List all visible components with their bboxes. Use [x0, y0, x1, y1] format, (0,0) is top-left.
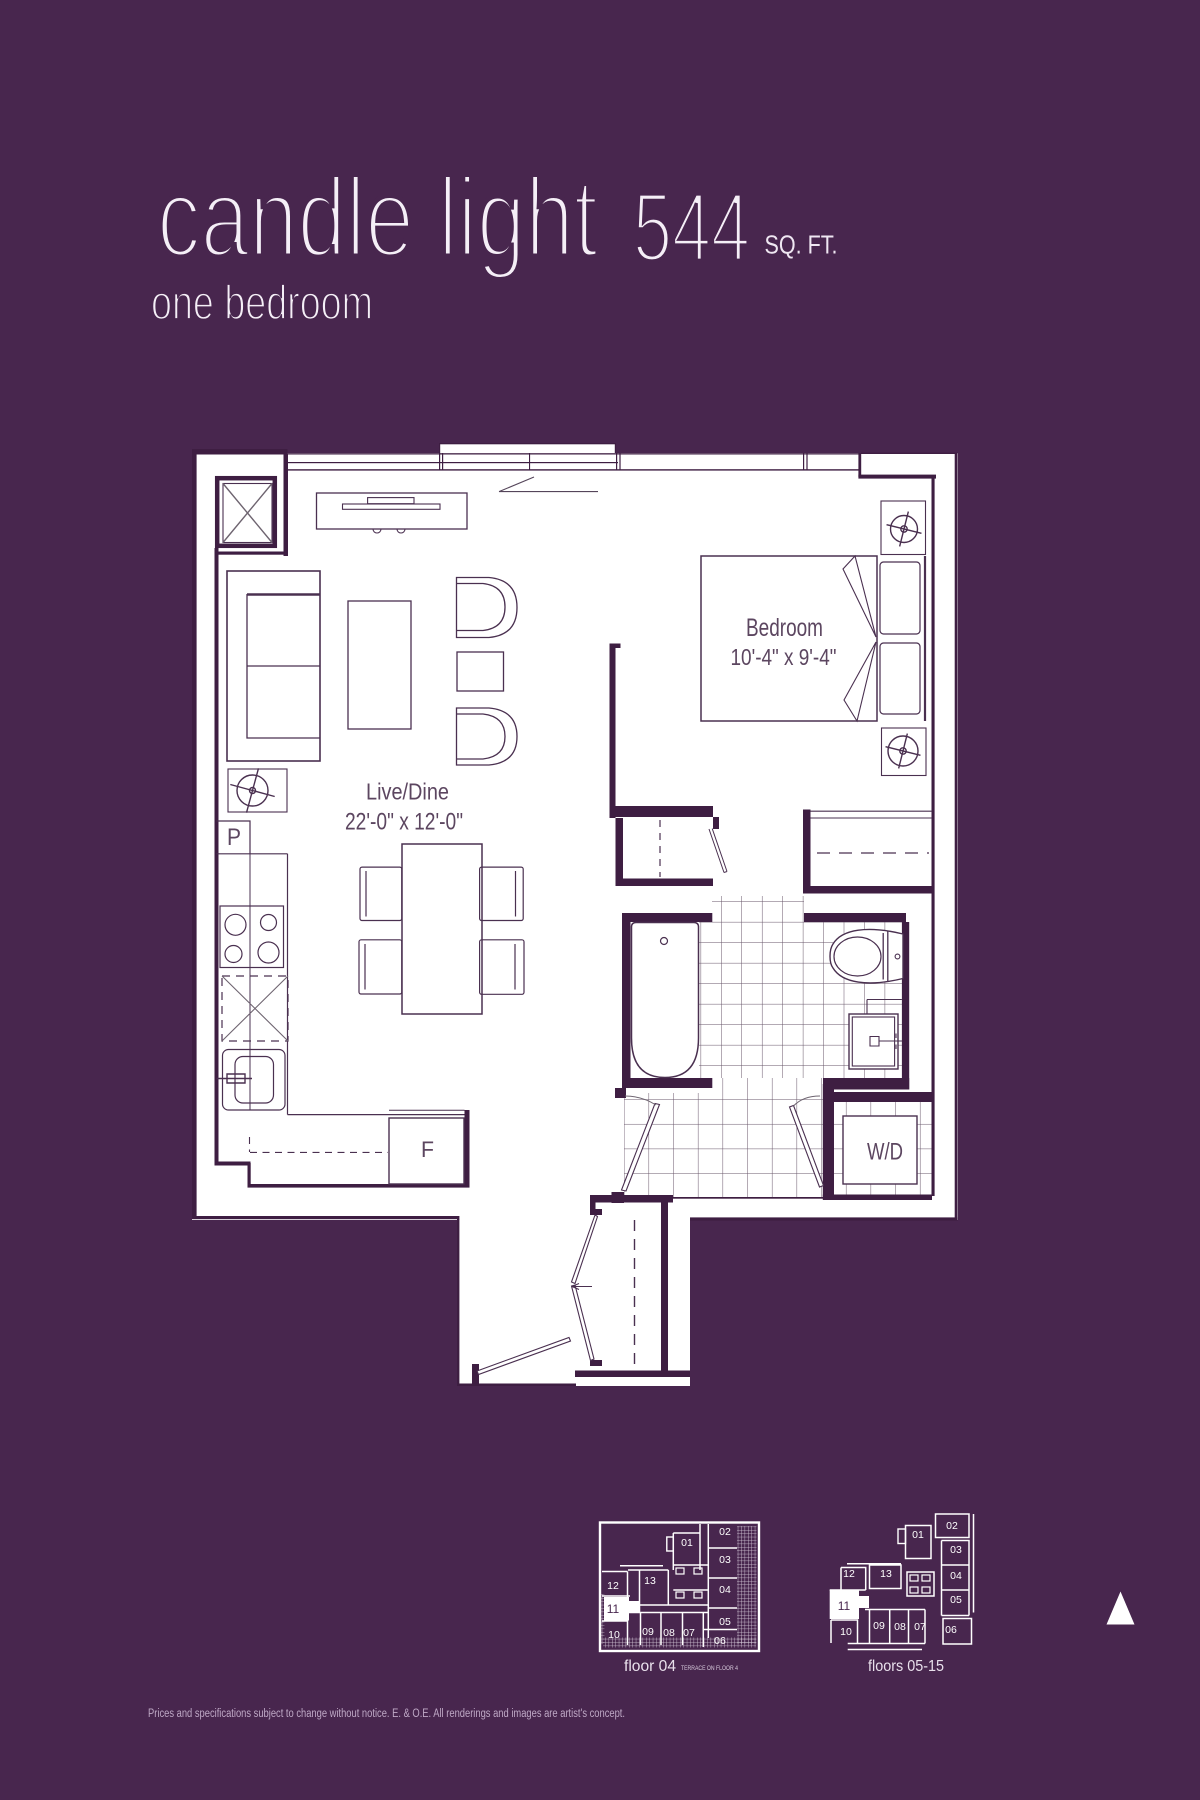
svg-text:13: 13: [880, 1568, 892, 1580]
svg-text:Live/Dine: Live/Dine: [366, 779, 449, 805]
svg-text:TERRACE ON FLOOR 4: TERRACE ON FLOOR 4: [681, 1665, 738, 1672]
svg-text:05: 05: [950, 1594, 962, 1606]
svg-text:544: 544: [633, 173, 750, 282]
svg-text:02: 02: [719, 1526, 731, 1538]
svg-text:Bedroom: Bedroom: [746, 614, 823, 642]
svg-text:12: 12: [843, 1568, 855, 1580]
svg-text:03: 03: [950, 1544, 962, 1556]
svg-text:W/D: W/D: [867, 1139, 903, 1166]
svg-text:13: 13: [644, 1575, 656, 1587]
svg-text:07: 07: [683, 1627, 695, 1639]
svg-text:11: 11: [838, 1599, 851, 1613]
svg-text:F: F: [421, 1137, 434, 1162]
svg-text:06: 06: [714, 1635, 726, 1647]
svg-text:05: 05: [719, 1616, 731, 1628]
svg-text:09: 09: [642, 1626, 654, 1638]
svg-text:10: 10: [840, 1626, 852, 1638]
svg-text:11: 11: [607, 1602, 620, 1616]
svg-text:02: 02: [946, 1520, 958, 1532]
svg-text:08: 08: [663, 1627, 675, 1639]
svg-text:10'-4" x 9'-4": 10'-4" x 9'-4": [731, 644, 837, 670]
svg-text:12: 12: [607, 1580, 619, 1592]
svg-text:04: 04: [719, 1584, 731, 1596]
svg-text:06: 06: [945, 1624, 957, 1636]
svg-text:04: 04: [950, 1570, 962, 1582]
svg-text:22'-0" x 12'-0": 22'-0" x 12'-0": [345, 809, 463, 836]
svg-text:Prices and specifications subj: Prices and specifications subject to cha…: [148, 1708, 625, 1720]
svg-text:01: 01: [912, 1529, 924, 1541]
svg-text:09: 09: [873, 1620, 885, 1632]
svg-text:07: 07: [914, 1621, 926, 1633]
svg-text:03: 03: [719, 1554, 731, 1566]
svg-text:10: 10: [608, 1629, 620, 1641]
svg-text:floor 04: floor 04: [624, 1658, 676, 1675]
svg-text:candle light: candle light: [157, 155, 598, 280]
svg-text:floors 05-15: floors 05-15: [868, 1658, 944, 1675]
svg-text:SQ. FT.: SQ. FT.: [765, 230, 838, 260]
svg-text:01: 01: [681, 1537, 693, 1549]
svg-text:08: 08: [894, 1621, 906, 1633]
svg-text:P: P: [227, 824, 241, 851]
svg-text:one bedroom: one bedroom: [151, 277, 373, 330]
